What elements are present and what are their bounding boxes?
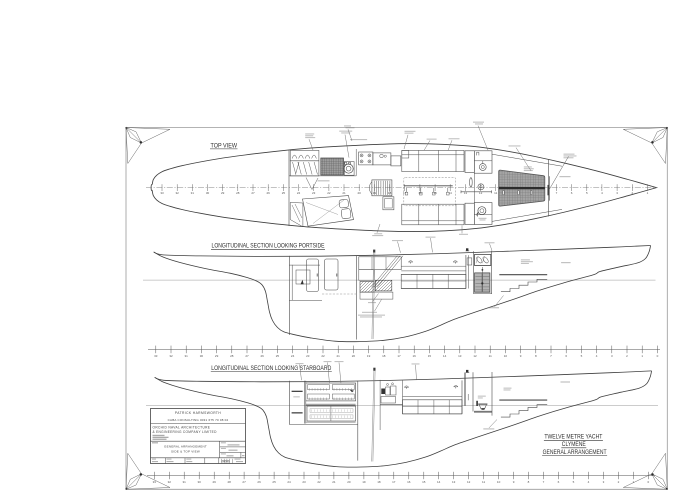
svg-text:26: 26 bbox=[257, 480, 261, 484]
svg-text:32: 32 bbox=[169, 354, 173, 358]
svg-text:23: 23 bbox=[306, 354, 310, 358]
svg-text:20: 20 bbox=[358, 191, 362, 195]
svg-text:27: 27 bbox=[245, 354, 249, 358]
svg-text:33: 33 bbox=[160, 191, 164, 195]
svg-text:32: 32 bbox=[176, 191, 180, 195]
svg-text:29: 29 bbox=[213, 480, 217, 484]
svg-text:30: 30 bbox=[198, 480, 202, 484]
svg-text:LONGITUDINAL SECTION LOOKING P: LONGITUDINAL SECTION LOOKING PORTSIDE bbox=[212, 244, 325, 250]
svg-text:25: 25 bbox=[272, 480, 276, 484]
svg-text:16: 16 bbox=[407, 480, 411, 484]
svg-text:25: 25 bbox=[282, 191, 286, 195]
svg-text:19: 19 bbox=[367, 354, 371, 358]
svg-text:31: 31 bbox=[191, 191, 195, 195]
svg-text:28: 28 bbox=[228, 480, 232, 484]
svg-text:26: 26 bbox=[261, 354, 265, 358]
svg-text:17: 17 bbox=[392, 480, 396, 484]
svg-text:30: 30 bbox=[206, 191, 210, 195]
svg-text:18: 18 bbox=[382, 354, 386, 358]
svg-text:31: 31 bbox=[185, 354, 189, 358]
svg-text:21: 21 bbox=[342, 191, 346, 195]
svg-text:23: 23 bbox=[302, 480, 306, 484]
svg-text:22: 22 bbox=[321, 354, 325, 358]
svg-text:15: 15 bbox=[428, 354, 432, 358]
svg-text:14: 14 bbox=[437, 480, 441, 484]
svg-text:32: 32 bbox=[168, 480, 172, 484]
svg-text:28: 28 bbox=[236, 191, 240, 195]
svg-text:16: 16 bbox=[413, 354, 417, 358]
svg-text:12: 12 bbox=[467, 480, 471, 484]
svg-text:24: 24 bbox=[297, 191, 301, 195]
svg-text:SIDE & TOP VIEW: SIDE & TOP VIEW bbox=[171, 450, 200, 454]
svg-text:13: 13 bbox=[452, 480, 456, 484]
svg-text:15: 15 bbox=[422, 480, 426, 484]
svg-text:27: 27 bbox=[251, 191, 255, 195]
svg-text:11: 11 bbox=[482, 480, 485, 484]
svg-text:11: 11 bbox=[494, 191, 497, 195]
svg-text:19: 19 bbox=[362, 480, 366, 484]
svg-text:27: 27 bbox=[242, 480, 246, 484]
svg-text:22: 22 bbox=[317, 480, 321, 484]
svg-text:19: 19 bbox=[373, 191, 377, 195]
svg-text:18: 18 bbox=[377, 480, 381, 484]
svg-text:33: 33 bbox=[154, 354, 158, 358]
svg-text:TOP VIEW: TOP VIEW bbox=[211, 143, 238, 149]
svg-text:24: 24 bbox=[291, 354, 295, 358]
svg-text:11: 11 bbox=[489, 354, 492, 358]
svg-text:31: 31 bbox=[183, 480, 187, 484]
svg-text:LONGITUDINAL SECTION LOOKING S: LONGITUDINAL SECTION LOOKING STARBOARD bbox=[211, 366, 332, 372]
svg-text:10: 10 bbox=[504, 354, 508, 358]
svg-text:21: 21 bbox=[337, 354, 341, 358]
svg-text:GENERAL ARRANGEMENT: GENERAL ARRANGEMENT bbox=[164, 445, 207, 449]
svg-text:CABA CONSULTING 0031 675 70: CABA CONSULTING 0031 675 70 08 02 bbox=[168, 418, 229, 422]
svg-text:17: 17 bbox=[397, 354, 401, 358]
svg-text:22: 22 bbox=[327, 191, 331, 195]
svg-text:26: 26 bbox=[267, 191, 271, 195]
svg-text:24: 24 bbox=[287, 480, 291, 484]
svg-text:CLYMENE: CLYMENE bbox=[562, 442, 586, 448]
svg-text:20: 20 bbox=[347, 480, 351, 484]
svg-text:10: 10 bbox=[497, 480, 501, 484]
svg-text:GENERAL ARRANGEMENT: GENERAL ARRANGEMENT bbox=[543, 450, 607, 456]
svg-text:12: 12 bbox=[473, 354, 477, 358]
svg-text:20: 20 bbox=[352, 354, 356, 358]
svg-text:29: 29 bbox=[215, 354, 219, 358]
svg-text:23: 23 bbox=[312, 191, 316, 195]
svg-text:28: 28 bbox=[230, 354, 234, 358]
svg-text:TWELVE METRE YACHT: TWELVE METRE YACHT bbox=[544, 435, 602, 441]
svg-text:21: 21 bbox=[332, 480, 336, 484]
svg-text:PATRICK HARMSWORTH: PATRICK HARMSWORTH bbox=[175, 411, 221, 415]
svg-text:30: 30 bbox=[200, 354, 204, 358]
svg-text:33: 33 bbox=[153, 480, 157, 484]
svg-text:14: 14 bbox=[443, 354, 447, 358]
svg-text:& ENGINEERING COMPANY LIMITE: & ENGINEERING COMPANY LIMITED bbox=[153, 430, 218, 434]
svg-text:29: 29 bbox=[221, 191, 225, 195]
svg-text:25: 25 bbox=[276, 354, 280, 358]
svg-text:13: 13 bbox=[458, 354, 462, 358]
